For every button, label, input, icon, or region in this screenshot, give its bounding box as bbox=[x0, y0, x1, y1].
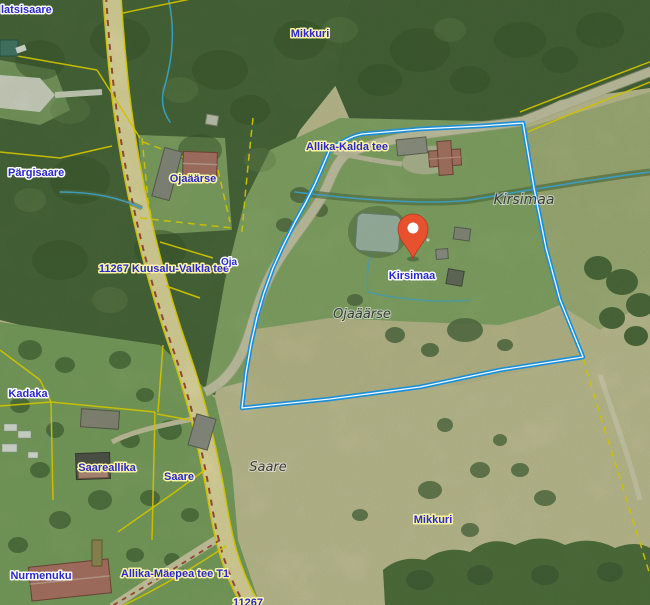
label-oja: Oja bbox=[221, 257, 238, 268]
marker-pin-hole bbox=[408, 223, 419, 234]
label-saare-place: Saare bbox=[164, 471, 194, 483]
map-view: latsisaare Mikkuri Pärgisaare Ojaäärse A… bbox=[0, 0, 650, 605]
label-latsisaare: latsisaare bbox=[1, 4, 52, 16]
label-mikkuri-top: Mikkuri bbox=[291, 28, 330, 40]
label-kuusalu-valkla-tee: 11267 Kuusalu-Valkla tee bbox=[99, 263, 229, 275]
label-nurmenuku: Nurmenuku bbox=[10, 570, 71, 582]
map-canvas[interactable]: latsisaare Mikkuri Pärgisaare Ojaäärse A… bbox=[0, 0, 650, 605]
terrain-grain-overlay bbox=[0, 0, 650, 605]
label-ojaaarse-cadastral: Ojaäärse bbox=[333, 307, 391, 322]
label-kirsimaa-cadastral: Kirsimaa bbox=[494, 192, 555, 208]
label-kirsimaa-marker: Kirsimaa bbox=[389, 270, 436, 282]
label-allika-kalda-tee: Allika-Kalda tee bbox=[306, 141, 388, 153]
label-pargisaare: Pärgisaare bbox=[8, 167, 64, 179]
label-saareallika: Saareallika bbox=[78, 462, 136, 474]
label-saare-cadastral: Saare bbox=[249, 460, 287, 475]
label-mikkuri-bottom: Mikkuri bbox=[414, 514, 453, 526]
label-road-number-bottom: 11267 bbox=[233, 597, 263, 605]
label-kadaka: Kadaka bbox=[8, 388, 48, 400]
label-ojaaarse-top: Ojaäärse bbox=[170, 173, 216, 185]
label-allika-maepea-tee: Allika-Mäepea tee T1 bbox=[121, 568, 229, 580]
